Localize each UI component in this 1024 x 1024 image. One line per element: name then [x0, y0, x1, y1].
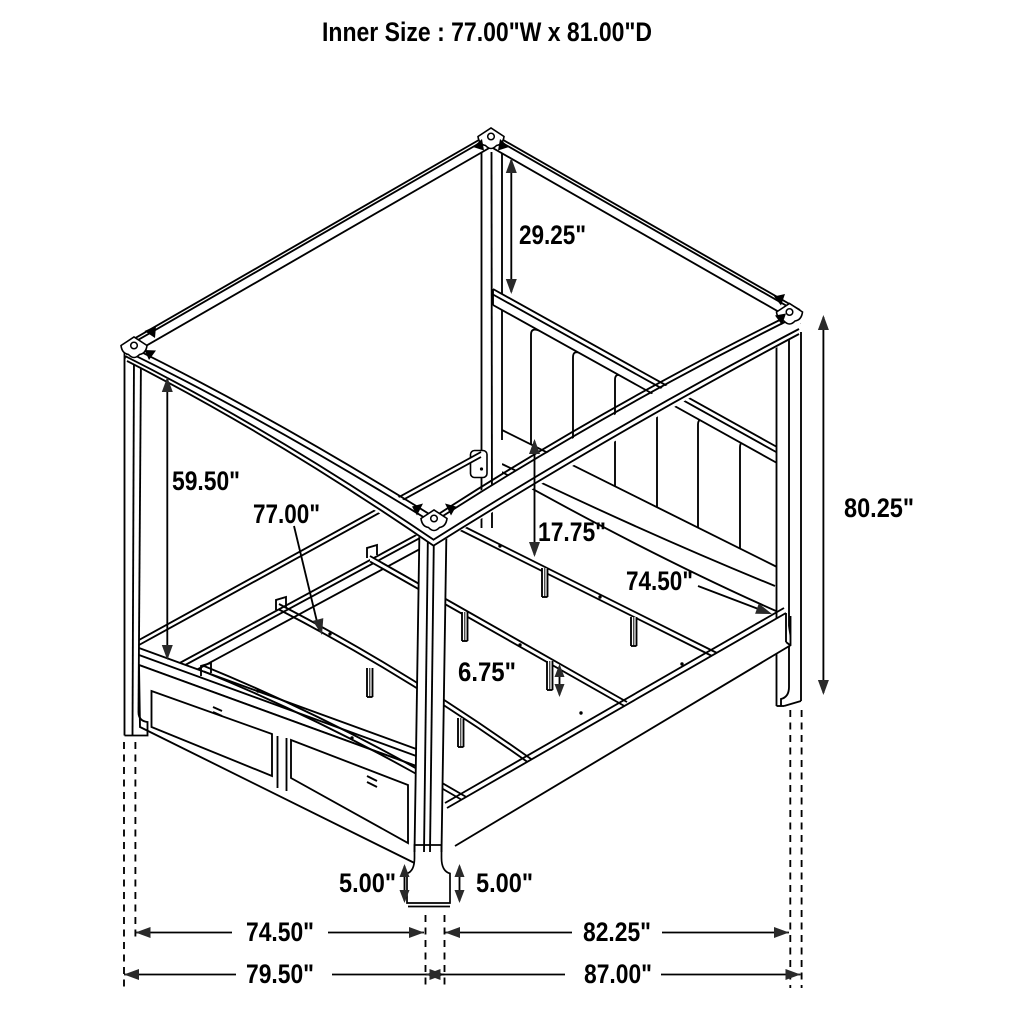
- svg-text:74.50": 74.50": [246, 917, 314, 947]
- svg-text:77.00": 77.00": [253, 499, 320, 529]
- svg-text:17.75": 17.75": [538, 517, 606, 547]
- svg-text:80.25": 80.25": [844, 493, 914, 523]
- svg-text:6.75": 6.75": [458, 657, 516, 687]
- svg-text:29.25": 29.25": [519, 220, 586, 250]
- svg-text:87.00": 87.00": [584, 959, 652, 989]
- svg-text:5.00": 5.00": [339, 868, 396, 898]
- svg-text:5.00": 5.00": [476, 868, 533, 898]
- svg-text:59.50": 59.50": [172, 466, 240, 496]
- svg-text:74.50": 74.50": [626, 566, 693, 596]
- svg-text:82.25": 82.25": [583, 917, 651, 947]
- svg-text:Inner Size : 77.00"W x 81.00"D: Inner Size : 77.00"W x 81.00"D: [322, 17, 652, 47]
- svg-text:79.50": 79.50": [246, 959, 314, 989]
